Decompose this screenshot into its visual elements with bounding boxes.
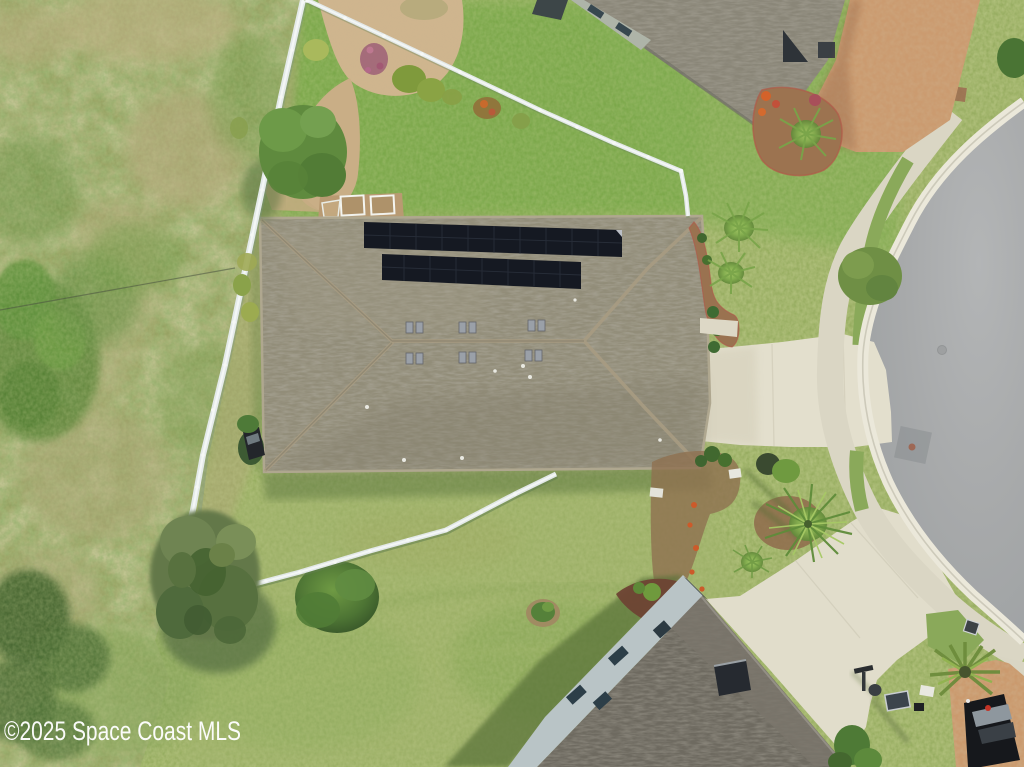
svg-text:©2025 Space Coast MLS: ©2025 Space Coast MLS bbox=[4, 716, 241, 746]
